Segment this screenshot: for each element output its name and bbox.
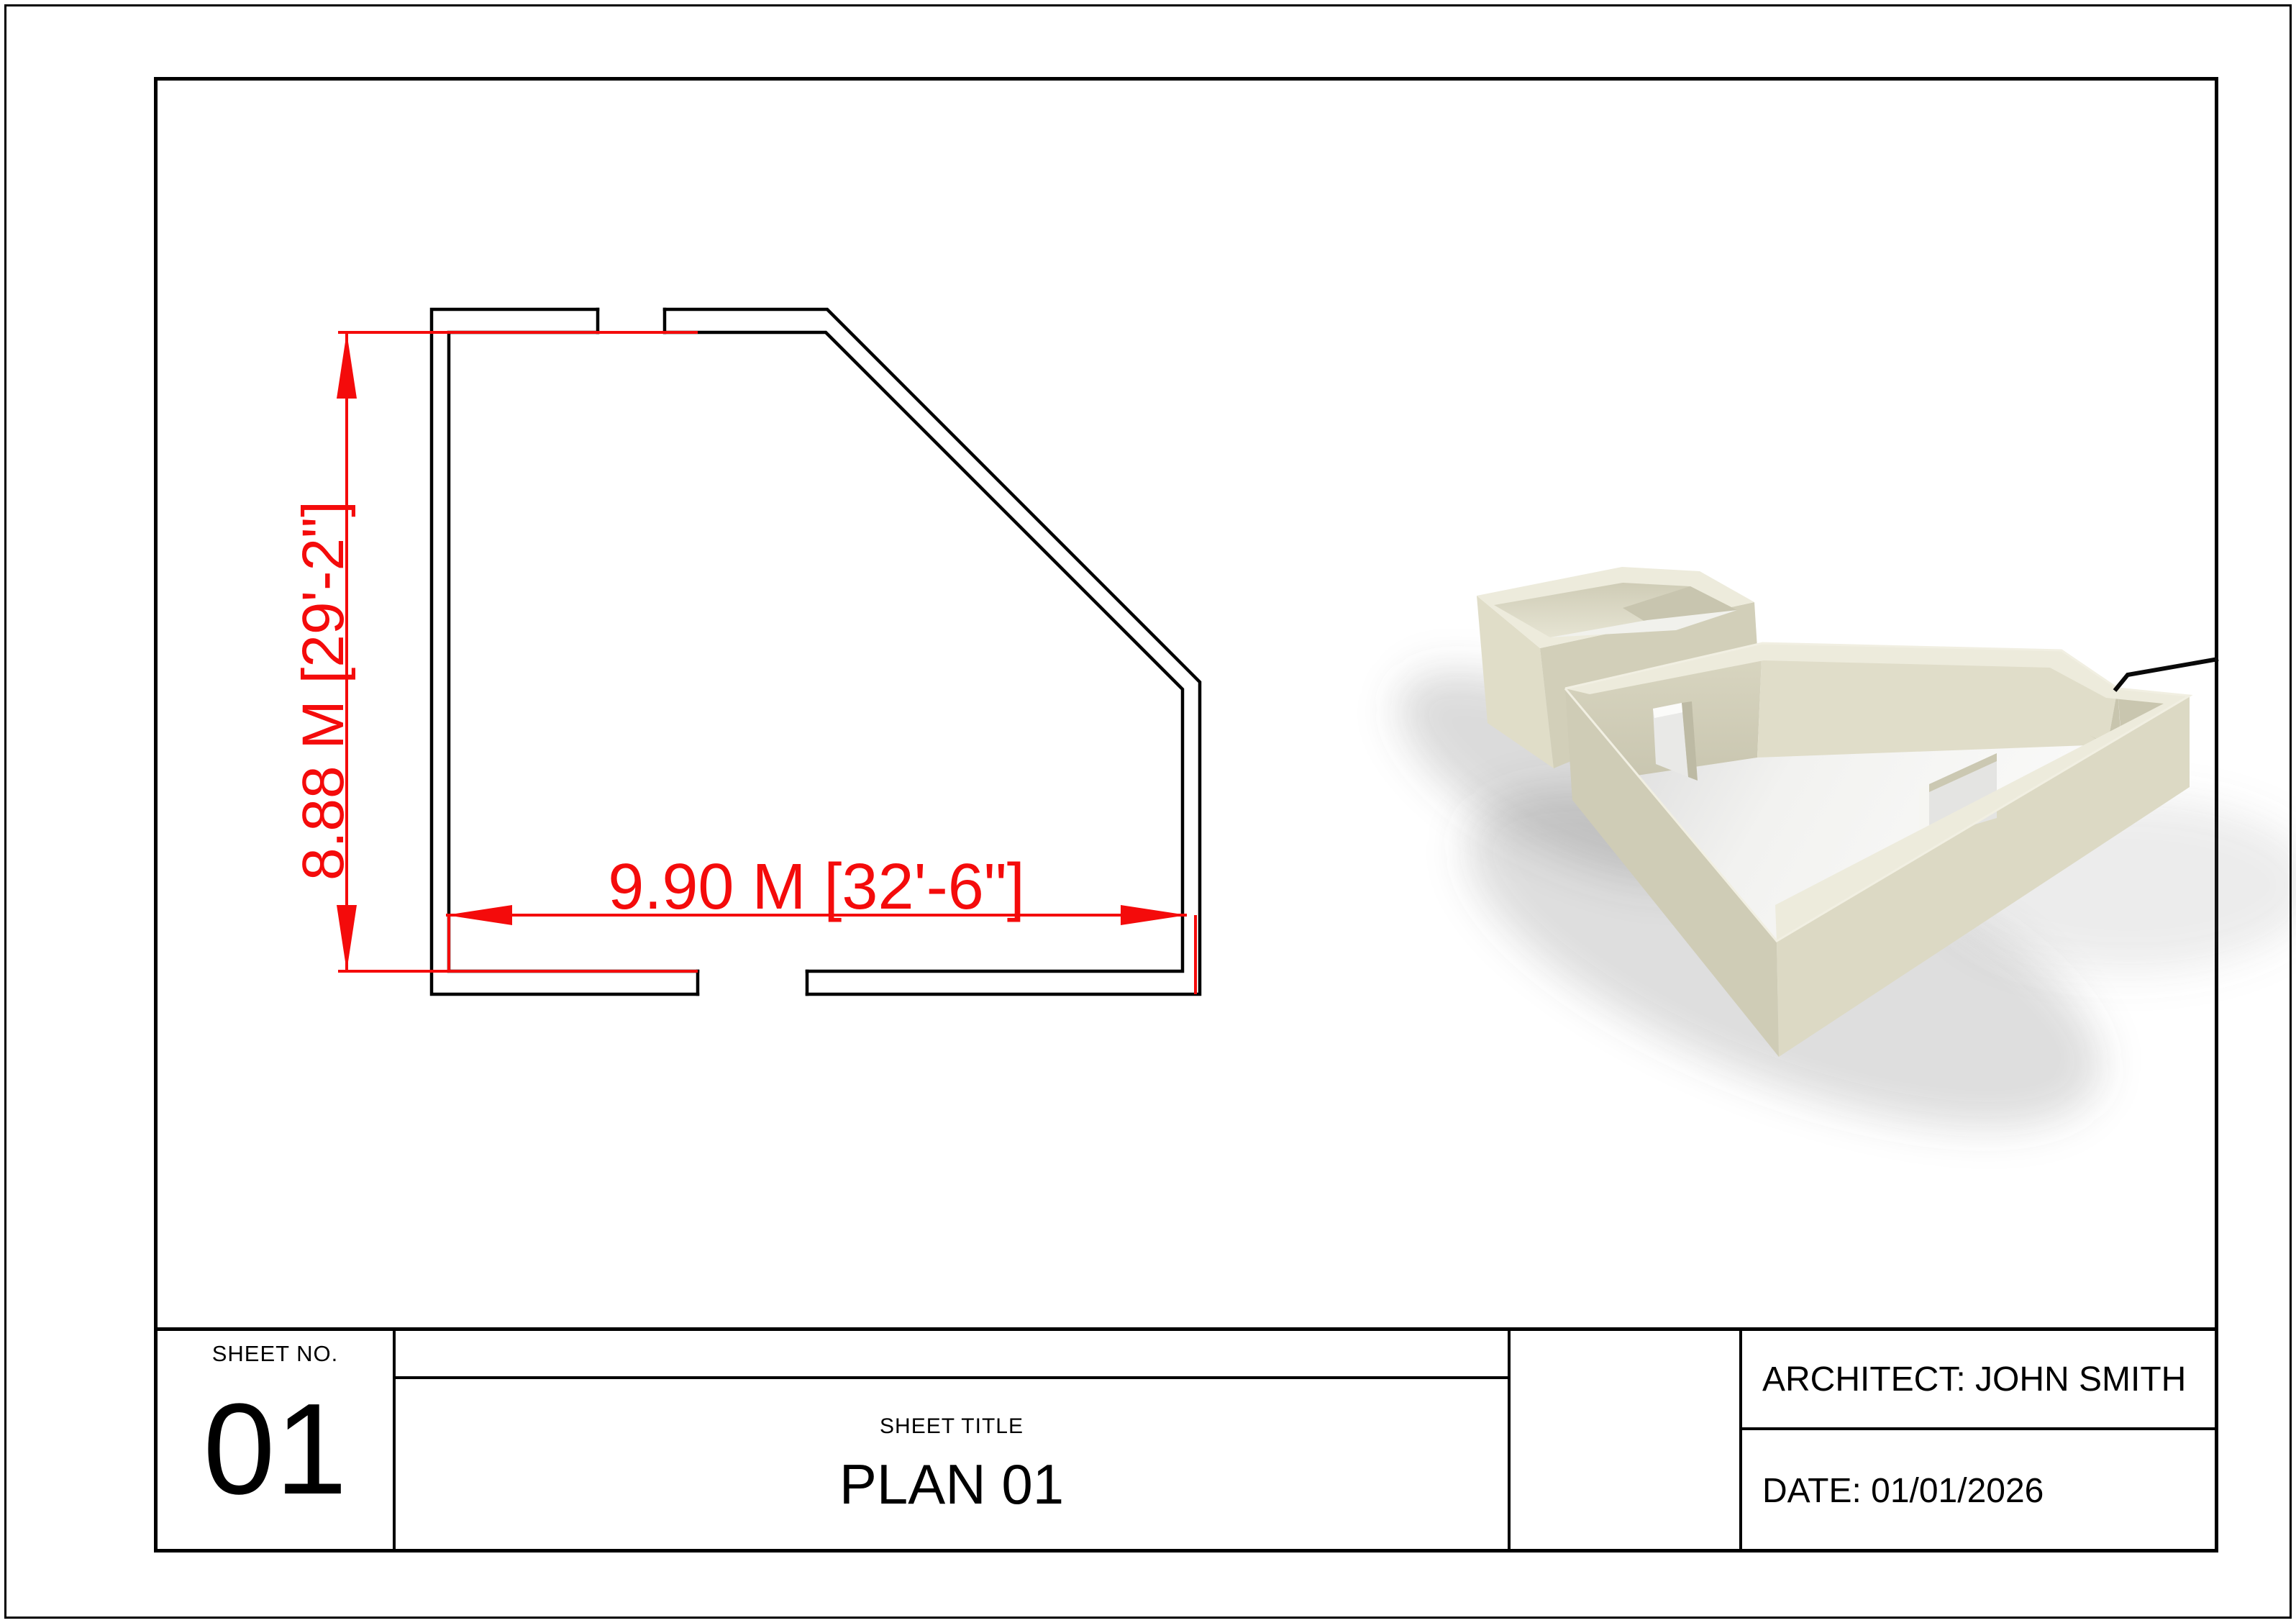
info-cell: ARCHITECT: JOHN SMITH DATE: 01/01/2026 bbox=[1742, 1331, 2215, 1549]
arrow-right bbox=[1121, 905, 1187, 925]
drawing-sheet: 9.90 M [32'-6"] 8.88 M [29'-2"] SHEET NO… bbox=[0, 0, 2296, 1623]
sheet-number-value: 01 bbox=[203, 1367, 347, 1532]
leader-line bbox=[2115, 659, 2218, 691]
dimensions: 9.90 M [32'-6"] 8.88 M [29'-2"] bbox=[291, 332, 1195, 994]
sheet-title-label: SHEET TITLE bbox=[880, 1414, 1024, 1439]
sheet-number-cell: SHEET NO. 01 bbox=[158, 1331, 396, 1549]
dim-text-vertical: 8.88 M [29'-2"] bbox=[291, 501, 356, 881]
arrow-down bbox=[337, 905, 357, 971]
date-text: DATE: 01/01/2026 bbox=[1762, 1471, 2044, 1511]
arrow-up bbox=[337, 332, 357, 399]
title-block: SHEET NO. 01 SHEET TITLE PLAN 01 ARCHITE… bbox=[154, 1327, 2218, 1552]
sheet-number-label: SHEET NO. bbox=[212, 1341, 339, 1367]
arrow-left bbox=[446, 905, 512, 925]
sheet-title-value: PLAN 01 bbox=[839, 1452, 1064, 1517]
empty-cell bbox=[1511, 1331, 1742, 1549]
sheet-title-cell: SHEET TITLE PLAN 01 bbox=[396, 1331, 1511, 1549]
title-cell-top-strip bbox=[396, 1331, 1508, 1379]
dim-text-horizontal: 9.90 M [32'-6"] bbox=[608, 851, 1024, 923]
render-3d-view bbox=[1368, 567, 2296, 1197]
architect-text: ARCHITECT: JOHN SMITH bbox=[1762, 1360, 2186, 1399]
